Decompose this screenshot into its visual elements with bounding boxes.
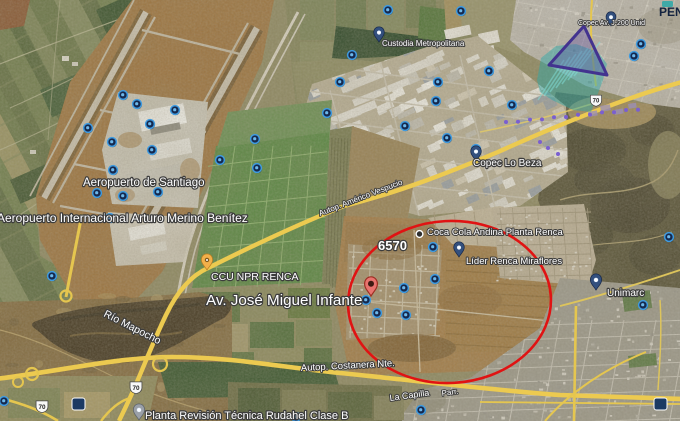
svg-text:Líder Renca Miraflores: Líder Renca Miraflores xyxy=(466,256,562,267)
svg-text:PENI: PENI xyxy=(659,5,680,19)
svg-text:Planta Revisión Técnica Rudahe: Planta Revisión Técnica Rudahel Clase B xyxy=(145,410,348,421)
svg-text:Custodia Metropolitana: Custodia Metropolitana xyxy=(382,39,465,48)
svg-text:Aeropuerto de Santiago: Aeropuerto de Santiago xyxy=(83,177,204,189)
svg-text:70: 70 xyxy=(593,99,600,105)
svg-text:70: 70 xyxy=(132,385,140,392)
svg-text:Copec Av. J-200 Unid: Copec Av. J-200 Unid xyxy=(578,20,645,27)
svg-text:6570: 6570 xyxy=(378,238,407,253)
svg-text:Aeropuerto Internacional Artur: Aeropuerto Internacional Arturo Merino B… xyxy=(0,211,248,225)
svg-text:CCU NPR RENCA: CCU NPR RENCA xyxy=(211,271,299,283)
svg-text:Coca Cola Andina Planta Renca: Coca Cola Andina Planta Renca xyxy=(427,227,563,238)
svg-text:70: 70 xyxy=(38,404,46,411)
svg-text:Av. José Miguel Infante: Av. José Miguel Infante xyxy=(206,292,362,309)
svg-text:Copec Lo Beza: Copec Lo Beza xyxy=(473,158,542,169)
svg-text:Unimarc: Unimarc xyxy=(607,288,644,299)
